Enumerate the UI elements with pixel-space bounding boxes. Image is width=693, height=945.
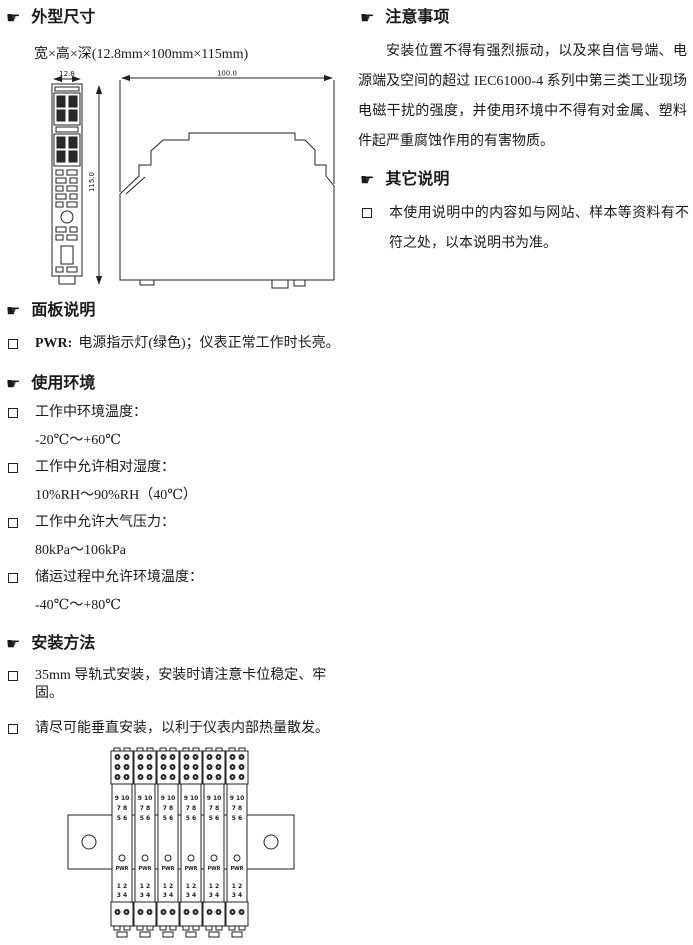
- left-column: ☛ 外型尺寸 宽×高×深(12.8mm×100mm×115mm): [4, 8, 350, 945]
- dimensions-subtitle: 宽×高×深(12.8mm×100mm×115mm): [34, 46, 350, 64]
- list-item: 工作中允许相对湿度： 10%RH～90%RH（40℃）: [4, 458, 350, 506]
- pwr-label: PWR:: [35, 336, 72, 351]
- list-item: 工作中环境温度： -20℃～+60℃: [4, 403, 350, 451]
- notes-paragraph: 安装位置不得有强烈振动，以及来自信号端、电源端及空间的超过 IEC61000-4…: [358, 37, 689, 157]
- manual-page: ☛ 外型尺寸 宽×高×深(12.8mm×100mm×115mm): [0, 0, 693, 945]
- dim-width-label: 12.8: [59, 70, 75, 78]
- checkbox-icon: [8, 463, 18, 473]
- section-title-other: 其它说明: [385, 170, 449, 190]
- checkbox-icon: [8, 573, 18, 583]
- module: [111, 748, 133, 937]
- pointing-hand-icon: ☛: [6, 303, 20, 319]
- section-title-panel: 面板说明: [31, 301, 95, 321]
- list-item: 请尽可能垂直安装，以利于仪表内部热量散发。: [4, 720, 350, 738]
- dim-depth-label: 115.0: [88, 172, 96, 192]
- section-title-installation: 安装方法: [31, 634, 95, 654]
- section-header-dimensions: ☛ 外型尺寸: [6, 8, 350, 28]
- install-item-text: 35mm 导轨式安装，安装时请注意卡位稳定、牢固。: [35, 667, 350, 703]
- env-value: 10%RH～90%RH（40℃）: [35, 486, 350, 506]
- panel-item-pwr: PWR:电源指示灯(绿色)；仪表正常工作时长亮。: [4, 335, 350, 353]
- checkbox-icon: [8, 339, 18, 349]
- mounting-figure-svg: 9 10 7 8 5 6 PWR 1 2 3 4: [40, 743, 322, 941]
- list-item: 本使用说明中的内容如与网站、样本等资料有不符之处，以本说明书为准。: [358, 199, 689, 259]
- module: [203, 748, 225, 937]
- section-header-installation: ☛ 安装方法: [6, 634, 350, 654]
- checkbox-icon: [8, 518, 18, 528]
- pointing-hand-icon: ☛: [6, 10, 20, 26]
- list-item: 35mm 导轨式安装，安装时请注意卡位稳定、牢固。: [4, 667, 350, 703]
- env-value: -40℃～+80℃: [35, 596, 350, 616]
- section-title-environment: 使用环境: [31, 374, 95, 394]
- outline-drawing: 12.8 100.0 115.0: [42, 70, 350, 297]
- checkbox-icon: [8, 408, 18, 418]
- env-label: 工作中环境温度：: [35, 403, 147, 423]
- env-label: 储运过程中允许环境温度：: [35, 568, 203, 588]
- list-item: 工作中允许大气压力： 80kPa～106kPa: [4, 513, 350, 561]
- module: [180, 748, 202, 937]
- section-title-dimensions: 外型尺寸: [31, 8, 95, 28]
- environment-list: 工作中环境温度： -20℃～+60℃ 工作中允许相对湿度： 10%RH～90%R…: [4, 403, 350, 616]
- side-view: [120, 133, 334, 288]
- other-item-text: 本使用说明中的内容如与网站、样本等资料有不符之处，以本说明书为准。: [389, 199, 689, 259]
- section-header-notes: ☛ 注意事项: [360, 8, 689, 28]
- install-item-text: 请尽可能垂直安装，以利于仪表内部热量散发。: [35, 720, 329, 738]
- checkbox-icon: [8, 671, 18, 681]
- env-label: 工作中允许大气压力：: [35, 513, 175, 533]
- module: [134, 748, 156, 937]
- pointing-hand-icon: ☛: [360, 172, 374, 188]
- module: [226, 748, 248, 937]
- pointing-hand-icon: ☛: [6, 636, 20, 652]
- list-item: 储运过程中允许环境温度： -40℃～+80℃: [4, 568, 350, 616]
- section-header-panel: ☛ 面板说明: [6, 301, 350, 321]
- right-column: ☛ 注意事项 安装位置不得有强烈振动，以及来自信号端、电源端及空间的超过 IEC…: [356, 8, 689, 945]
- pointing-hand-icon: ☛: [360, 10, 374, 26]
- dim-height-label: 100.0: [217, 70, 237, 78]
- env-value: -20℃～+60℃: [35, 431, 350, 451]
- module: [157, 748, 179, 937]
- mounting-figure: 9 10 7 8 5 6 PWR 1 2 3 4: [38, 743, 324, 945]
- section-header-other: ☛ 其它说明: [360, 170, 689, 190]
- env-label: 工作中允许相对湿度：: [35, 458, 175, 478]
- pwr-description: 电源指示灯(绿色)；仪表正常工作时长亮。: [78, 336, 339, 351]
- front-view: [52, 84, 82, 284]
- pointing-hand-icon: ☛: [6, 376, 20, 392]
- section-header-environment: ☛ 使用环境: [6, 374, 350, 394]
- outline-drawing-svg: 12.8 100.0 115.0: [42, 70, 342, 292]
- checkbox-icon: [8, 724, 18, 734]
- env-value: 80kPa～106kPa: [35, 541, 350, 561]
- section-title-notes: 注意事项: [385, 8, 449, 28]
- panel-item-text: PWR:电源指示灯(绿色)；仪表正常工作时长亮。: [35, 335, 340, 353]
- checkbox-icon: [362, 208, 372, 218]
